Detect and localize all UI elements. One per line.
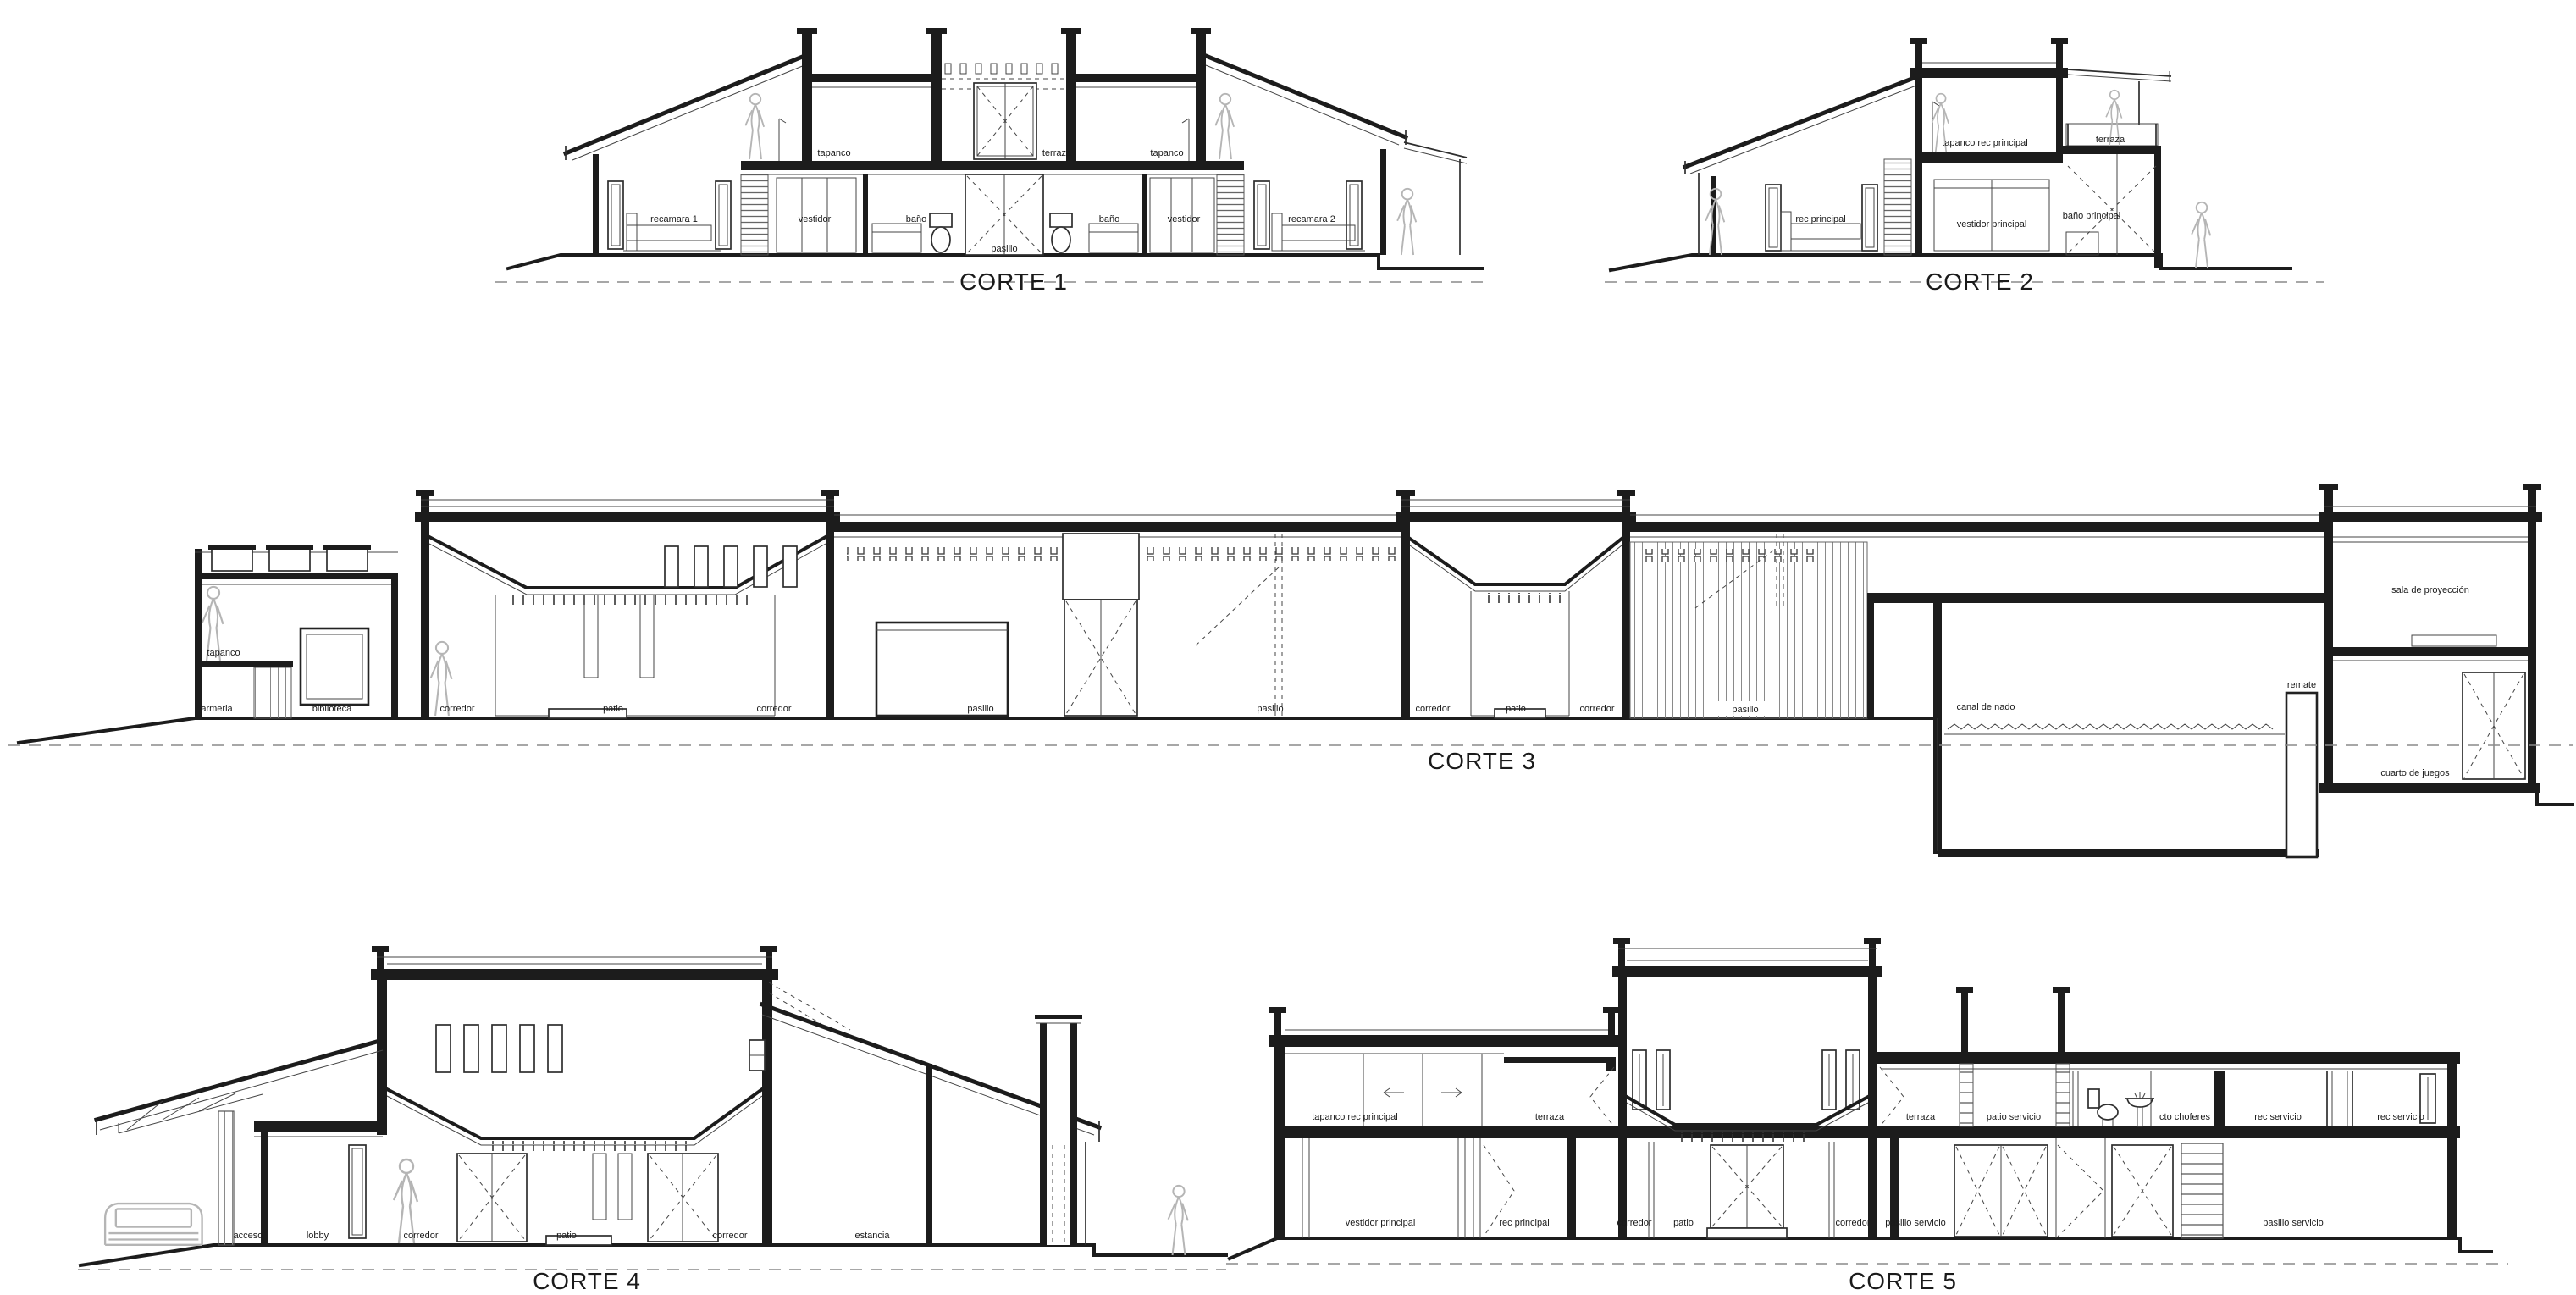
- projector-table: [2412, 635, 2496, 646]
- ground-line: [80, 1245, 1226, 1265]
- pergola-fringe: [1681, 1132, 1812, 1142]
- upper-floor-slab: [1915, 152, 2063, 163]
- tapanco-rec-principal-block: [1269, 1007, 1620, 1238]
- biblioteca-window: [301, 628, 368, 705]
- label-rec-principal: rec principal: [1795, 214, 1845, 224]
- label-tapanco-right: tapanco: [1150, 148, 1183, 158]
- label-pasillo-2: pasillo: [1257, 704, 1283, 714]
- label-canal-de-nado: canal de nado: [1956, 702, 2015, 712]
- clerestory-band: [1143, 547, 1397, 561]
- label-corredor-2: corredor: [757, 704, 792, 714]
- left-roof-beam: [812, 74, 931, 82]
- label-patio-1: patio: [603, 704, 623, 714]
- upper-floor-slab: [1274, 1126, 2460, 1138]
- clerestory-band: [847, 547, 1059, 561]
- label-patio: patio: [1673, 1218, 1694, 1228]
- stair-projection-dashed: [1196, 534, 1282, 716]
- label-terraza: terraza: [1042, 148, 1072, 158]
- label-pasillo-3: pasillo: [1732, 705, 1758, 715]
- label-bano-right: baño: [1099, 214, 1119, 224]
- swimming-channel: [1938, 693, 2319, 857]
- service-wing: [1630, 515, 2324, 854]
- label-armeria: armeria: [201, 704, 233, 714]
- corte-3-section: tapanco armeria biblioteca corredor pati…: [8, 484, 2573, 857]
- drawing-sheet: tapanco terraza tapanco recamara 1 vesti…: [0, 0, 2576, 1295]
- estancia-wing: [762, 1004, 1099, 1245]
- section-title-corte-4: CORTE 4: [533, 1268, 641, 1294]
- label-vestidor-principal: vestidor principal: [1957, 219, 2027, 230]
- label-biblioteca: biblioteca: [312, 704, 352, 714]
- label-tapanco-rec-principal: tapanco rec principal: [1312, 1112, 1398, 1122]
- label-corredor-3: corredor: [1416, 704, 1451, 714]
- corte-4-section: acceso lobby corredor patio corredor est…: [78, 946, 1226, 1294]
- roof-access-dashed: [769, 982, 850, 1033]
- label-patio-servicio: patio servicio: [1987, 1112, 2041, 1122]
- label-vestidor-principal: vestidor principal: [1346, 1218, 1416, 1228]
- label-sala-de-proyeccion: sala de proyección: [2391, 585, 2469, 595]
- label-bano-left: baño: [906, 214, 926, 224]
- patio-x-door: [648, 1154, 718, 1242]
- label-tapanco: tapanco: [207, 648, 240, 658]
- section-title-corte-3: CORTE 3: [1428, 748, 1536, 774]
- label-rec-servicio-1: rec servicio: [2254, 1112, 2302, 1122]
- staircase: [2181, 1143, 2223, 1238]
- section-title-corte-2: CORTE 2: [1926, 268, 2034, 295]
- door-swing-dashed: [2058, 1145, 2103, 1237]
- ladder: [2056, 1064, 2070, 1126]
- terrace-slab: [2063, 146, 2161, 154]
- corte-5-section: tapanco rec principal terraza terraza pa…: [1226, 938, 2508, 1294]
- corte-2-section: tapanco rec principal terraza rec princi…: [1605, 38, 2324, 295]
- pedestal-sink: [2125, 1092, 2154, 1126]
- label-pasillo-1: pasillo: [967, 704, 993, 714]
- upper-floor-slab: [741, 161, 1244, 170]
- left-wall: [593, 154, 599, 255]
- person-figure: [1397, 189, 1416, 255]
- tapanco-rail: [779, 119, 786, 161]
- door-swing-dashed: [1590, 1067, 1614, 1126]
- pergola-fringe: [1484, 593, 1562, 603]
- x-door-panels: [1954, 1145, 2048, 1237]
- vestidor-principal-closet: [1934, 180, 2049, 251]
- water-line: [1948, 724, 2273, 729]
- label-terraza-2: terraza: [1906, 1112, 1936, 1122]
- person-figure: [1169, 1186, 1188, 1255]
- slat-wall: [1884, 159, 1911, 255]
- wing-beam: [1867, 593, 2324, 603]
- ground-line: [19, 718, 1939, 743]
- armeria-biblioteca-tower: [195, 545, 398, 718]
- label-recamara-2: recamara 2: [1288, 214, 1335, 224]
- label-vestidor-right: vestidor: [1168, 214, 1201, 224]
- pasillo-x-door: [1064, 600, 1137, 716]
- roof-truss: [119, 1093, 263, 1133]
- plank-screen: [1630, 542, 1867, 718]
- x-door: [2112, 1145, 2173, 1237]
- label-cuarto-de-juegos: cuarto de juegos: [2380, 768, 2450, 778]
- label-pasillo: pasillo: [991, 244, 1017, 254]
- right-roof: [1206, 56, 1406, 137]
- label-patio: patio: [556, 1231, 577, 1241]
- mono-pitch-roof: [1685, 75, 1921, 167]
- right-roof-beam: [1076, 74, 1196, 82]
- skylight-box: [1063, 534, 1139, 600]
- central-volume: [371, 946, 850, 1245]
- right-porch-canopy: [1404, 142, 1467, 158]
- slatted-post: [218, 1111, 234, 1245]
- patio-x-door: [457, 1154, 527, 1242]
- ladder-slats: [254, 667, 291, 718]
- label-corredor-4: corredor: [1580, 704, 1615, 714]
- label-corredor-1: corredor: [1617, 1218, 1652, 1228]
- door-swing-dashed: [1880, 1067, 1904, 1126]
- pasillo-x-door: [965, 174, 1043, 255]
- terraza-canopy: [1504, 1057, 1616, 1063]
- label-estancia: estancia: [855, 1231, 891, 1241]
- ground-line: [1230, 1238, 2491, 1259]
- toilet: [2088, 1089, 2118, 1126]
- corte-1-section: tapanco terraza tapanco recamara 1 vesti…: [495, 28, 1486, 295]
- flat-roof-slab: [1910, 68, 2068, 78]
- label-pasillo-servicio-2: pasillo servicio: [2263, 1218, 2324, 1228]
- middle-gallery-wall: [834, 515, 1401, 716]
- label-patio-2: patio: [1506, 704, 1526, 714]
- patio-step: [1707, 1228, 1787, 1238]
- label-tapanco-rec-principal: tapanco rec principal: [1942, 138, 2028, 148]
- label-acceso: acceso: [234, 1231, 263, 1241]
- patio-pavilion-2: [1396, 490, 1636, 718]
- label-rec-principal: rec principal: [1499, 1218, 1549, 1228]
- label-recamara-1: recamara 1: [650, 214, 698, 224]
- bano-principal-shower: [2066, 154, 2156, 255]
- section-title-corte-5: CORTE 5: [1849, 1268, 1957, 1294]
- person-figure: [745, 94, 764, 159]
- label-tapanco-left: tapanco: [817, 148, 850, 158]
- label-corredor-1: corredor: [404, 1231, 439, 1241]
- lobby-block: [254, 1121, 383, 1245]
- label-corredor-2: corredor: [1836, 1218, 1871, 1228]
- sliding-panel: [876, 623, 1008, 716]
- label-cto-choferes: cto choferes: [2159, 1112, 2210, 1122]
- central-patio-pavilion: [1612, 938, 1904, 1238]
- tapanco-mezzanine-slab: [200, 661, 293, 667]
- patio-x-door: [1711, 1145, 1783, 1228]
- person-figure: [1215, 94, 1234, 159]
- label-remate: remate: [2287, 680, 2316, 690]
- label-terraza-1: terraza: [1535, 1112, 1565, 1122]
- car-figure: [105, 1204, 202, 1245]
- person-figure: [2192, 202, 2210, 268]
- label-corredor-1: corredor: [440, 704, 475, 714]
- ground-line: [508, 255, 1482, 268]
- label-pasillo-servicio-1: pasillo servicio: [1885, 1218, 1946, 1228]
- remate-pillar: [2286, 693, 2317, 857]
- ladder: [1960, 1064, 1973, 1126]
- projection-room-block: [2319, 484, 2573, 805]
- patio-pavilion-1: [415, 490, 840, 718]
- carport: [97, 1040, 383, 1245]
- label-terraza: terraza: [2096, 135, 2125, 145]
- terrace-x-door: [974, 83, 1036, 159]
- clerestory-band: [1639, 549, 1821, 562]
- label-lobby: lobby: [307, 1231, 329, 1241]
- label-vestidor-left: vestidor: [799, 214, 832, 224]
- elevation-sections-drawing: tapanco terraza tapanco recamara 1 vesti…: [0, 0, 2576, 1295]
- pergola-fringe: [489, 1141, 688, 1151]
- pergola-fringe: [508, 595, 754, 606]
- label-corredor-2: corredor: [713, 1231, 748, 1241]
- label-bano-principal: baño principal: [2063, 211, 2121, 221]
- bathroom-right: [1050, 213, 1138, 252]
- slat-wall: [1217, 174, 1244, 255]
- left-roof: [566, 56, 804, 153]
- section-title-corte-1: CORTE 1: [959, 268, 1068, 295]
- right-wall: [1380, 149, 1386, 255]
- label-rec-servicio-2: rec servicio: [2377, 1112, 2424, 1122]
- slat-wall: [741, 174, 768, 255]
- x-door: [2463, 672, 2525, 779]
